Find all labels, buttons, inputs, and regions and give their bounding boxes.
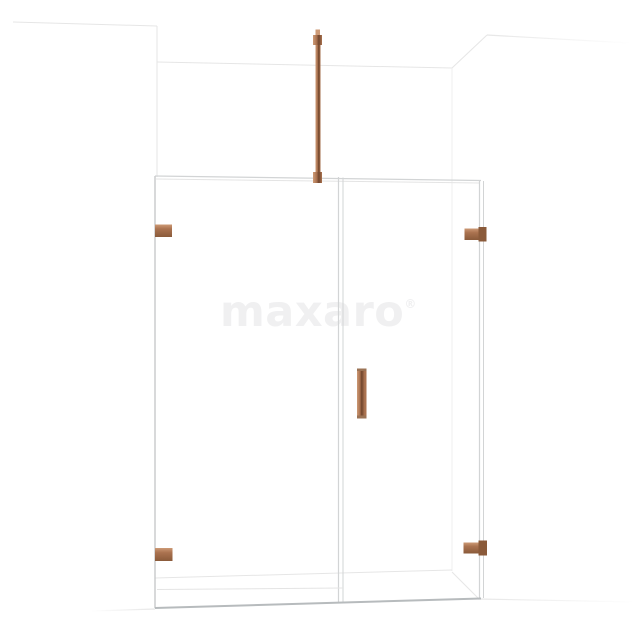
hinge-top-right-body <box>465 229 480 241</box>
back-wall-top-edge <box>157 62 452 68</box>
hinge-bottom-right-clamp <box>479 541 488 556</box>
floor-edge-right <box>478 599 640 602</box>
ceiling-anchor-cap <box>313 35 322 45</box>
right-wall-top-edge <box>487 35 630 43</box>
handle-bar <box>357 371 367 416</box>
ceiling-support-bar <box>313 30 322 184</box>
hinge-top-right-clamp <box>479 227 487 242</box>
shower-enclosure-render <box>0 0 640 640</box>
hinge-top-right <box>465 227 487 242</box>
back-wall-floor-edge <box>155 570 452 578</box>
wall-brackets <box>155 225 487 562</box>
right-wall-floor-corner <box>452 572 478 598</box>
glass-rear-bottom-edge <box>157 588 343 590</box>
wall-bracket-bottom-left <box>155 548 173 561</box>
support-bar <box>316 45 321 172</box>
door-handle <box>357 369 367 419</box>
left-wall-top-edge <box>13 22 157 26</box>
right-wall-corner-top <box>452 35 487 68</box>
glass-bottom-edge <box>155 599 481 609</box>
hinge-bottom-right-body <box>464 543 480 554</box>
support-bar-glass-clamp <box>313 172 322 183</box>
handle-cap-bottom <box>357 416 367 419</box>
glass-panels <box>155 176 484 608</box>
room-walls <box>13 22 640 611</box>
shower-door-product-image: maxaro® <box>0 0 640 640</box>
wall-bracket-top-left <box>155 225 172 238</box>
floor-edge-left <box>92 609 155 611</box>
hinge-bottom-right <box>464 541 488 556</box>
